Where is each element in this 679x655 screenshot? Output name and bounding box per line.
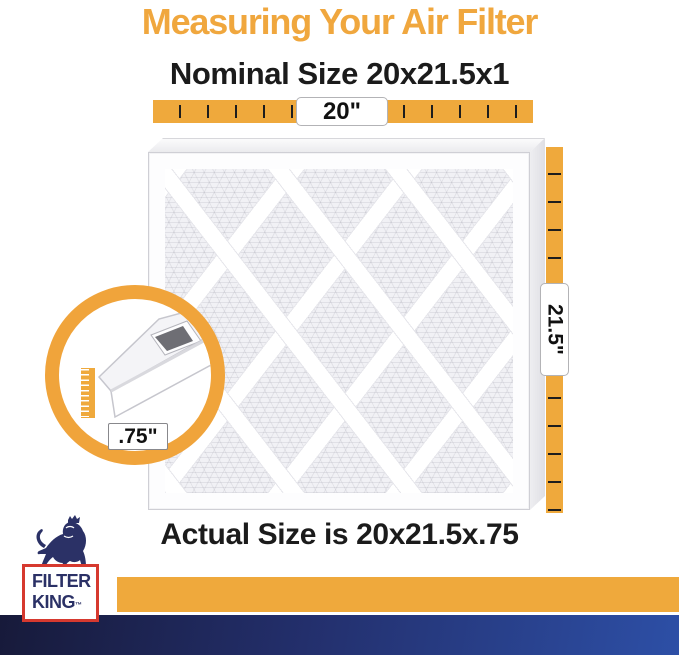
height-measurement-label: 21.5" (540, 283, 569, 376)
depth-measurement-label: .75" (108, 423, 168, 450)
filter-king-logo: FILTER KING™ (20, 512, 102, 624)
page-title: Measuring Your Air Filter (0, 1, 679, 43)
width-measurement-label: 20" (296, 97, 388, 126)
filter-pleated-media (165, 169, 513, 493)
trademark-symbol: ™ (75, 602, 82, 609)
nominal-size-text: Nominal Size 20x21.5x1 (0, 56, 679, 92)
depth-mini-ruler (81, 368, 95, 418)
logo-line-king: KING™ (32, 592, 96, 613)
logo-line-filter: FILTER (32, 571, 96, 592)
footer-orange-bar (117, 577, 679, 612)
horizontal-width-ruler: 20" (153, 100, 533, 123)
logo-text-box: FILTER KING™ (22, 564, 99, 622)
ruler-ticks (81, 369, 89, 417)
filter-top-face (148, 138, 545, 152)
infographic-measuring-air-filter: Measuring Your Air Filter Nominal Size 2… (0, 0, 679, 655)
vertical-height-ruler: 21.5" (546, 147, 563, 513)
lion-with-crown-icon (30, 514, 94, 570)
